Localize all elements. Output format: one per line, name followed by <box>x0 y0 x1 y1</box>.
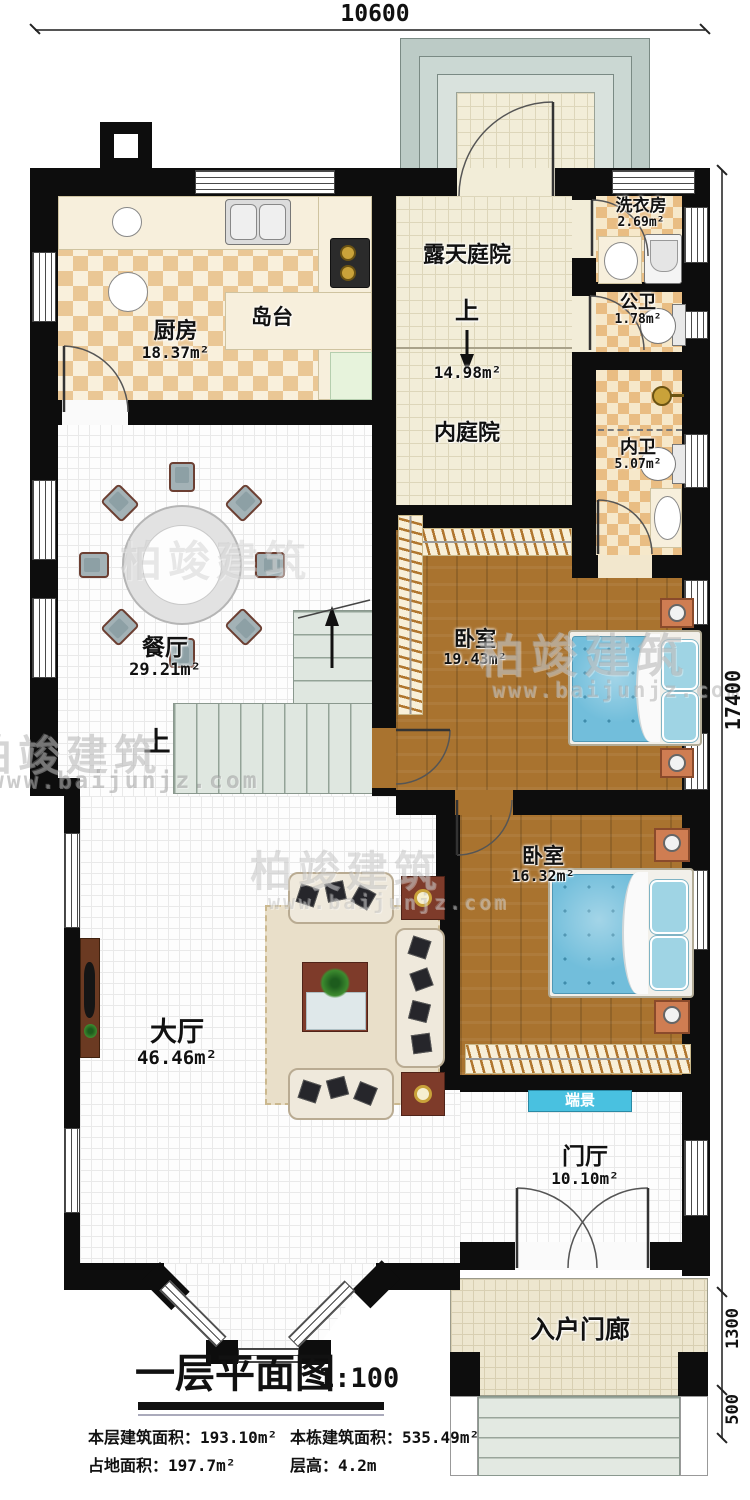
door-arc-innerwc <box>598 500 652 554</box>
laundry-label: 洗衣房 2.69m² <box>598 197 684 230</box>
stat-value-height: 4.2m <box>338 1456 377 1475</box>
dim-right-steps-label: 500 <box>724 1394 743 1425</box>
living-area: 46.46m² <box>112 1048 242 1069</box>
island-label: 岛台 <box>222 306 322 329</box>
publicwc-name: 公卫 <box>598 293 678 313</box>
stat-value-footprint: 197.7m² <box>168 1456 235 1475</box>
innerwc-area: 5.07m² <box>596 458 680 472</box>
porch-label: 入户门廊 <box>492 1316 668 1344</box>
innerwc-label: 内卫 5.07m² <box>596 438 680 472</box>
dining-area: 29.21m² <box>110 661 220 680</box>
kitchen-area: 18.37m² <box>118 344 233 362</box>
courtyard-area-label: 14.98m² <box>410 364 525 382</box>
title-underline-thick <box>138 1402 384 1410</box>
stat-label-floor-area: 本层建筑面积： <box>88 1428 200 1447</box>
bedroom2-name: 卧室 <box>488 845 598 868</box>
publicwc-area: 1.78m² <box>598 313 678 327</box>
dining-name: 餐厅 <box>110 636 220 661</box>
dining-up-label: 上 <box>136 728 178 758</box>
courtyard-up-label: 上 <box>447 298 487 324</box>
door-arc-foyer-left <box>517 1188 597 1268</box>
publicwc-label: 公卫 1.78m² <box>598 293 678 327</box>
dim-right-porch-label: 1300 <box>724 1308 743 1349</box>
floor-plan-canvas: 10600 <box>0 0 750 1500</box>
stats-row-1b: 本栋建筑面积：535.49m² <box>290 1424 479 1448</box>
door-arc-courtyard <box>459 102 553 196</box>
stair-up-arrow <box>298 600 370 668</box>
open-courtyard-label: 露天庭院 <box>392 244 542 268</box>
bedroom2-label: 卧室 16.32m² <box>488 845 598 885</box>
stat-value-floor-area: 193.10m² <box>200 1428 277 1447</box>
kitchen-name: 厨房 <box>118 320 233 344</box>
door-arc-foyer-right <box>568 1188 648 1268</box>
foyer-label: 门厅 10.10m² <box>530 1145 640 1188</box>
foyer-name: 门厅 <box>530 1145 640 1170</box>
innerwc-name: 内卫 <box>596 438 680 458</box>
dim-right-main-label: 17400 <box>722 670 744 730</box>
laundry-name: 洗衣房 <box>598 197 684 216</box>
dining-label: 餐厅 29.21m² <box>110 636 220 680</box>
living-name: 大厅 <box>112 1018 242 1048</box>
door-arc-bedroom1 <box>396 730 450 784</box>
stats-row-2b: 层高：4.2m <box>290 1452 377 1476</box>
stat-value-total-area: 535.49m² <box>402 1428 479 1447</box>
living-label: 大厅 46.46m² <box>112 1018 242 1069</box>
title-underline-thin <box>138 1414 384 1416</box>
foyer-area: 10.10m² <box>530 1170 640 1188</box>
bedroom1-area: 19.43m² <box>420 651 530 668</box>
stat-label-total-area: 本栋建筑面积： <box>290 1428 402 1447</box>
stats-row-1a: 本层建筑面积：193.10m² <box>88 1424 277 1448</box>
laundry-area: 2.69m² <box>598 216 684 230</box>
bedroom2-area: 16.32m² <box>488 868 598 885</box>
stat-label-height: 层高： <box>290 1456 338 1475</box>
dim-line-right-main <box>721 170 723 1292</box>
plan-scale: 1:100 <box>318 1364 408 1394</box>
inner-courtyard-label: 内庭院 <box>392 422 542 446</box>
bedroom1-name: 卧室 <box>420 628 530 651</box>
bedroom1-label: 卧室 19.43m² <box>420 628 530 668</box>
stats-row-2a: 占地面积：197.7m² <box>88 1452 235 1476</box>
kitchen-label: 厨房 18.37m² <box>118 320 233 362</box>
stat-label-footprint: 占地面积： <box>88 1456 168 1475</box>
